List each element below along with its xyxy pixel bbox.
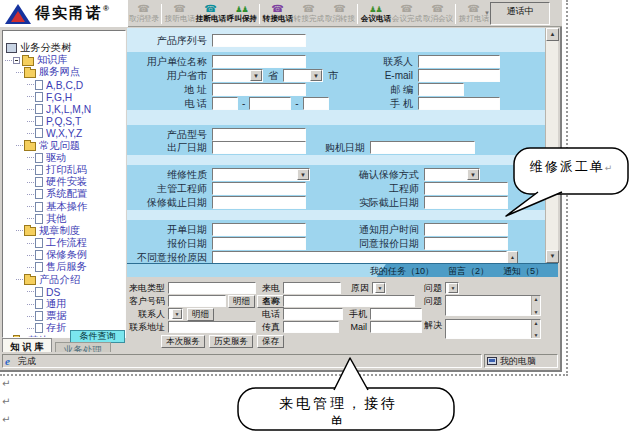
this-service-button[interactable]: 本次服务 <box>161 335 205 348</box>
chief-engineer-label: 主管工程师 <box>127 182 207 196</box>
toolbar-button-label: 会议完成 <box>391 14 421 24</box>
conference-done-icon <box>400 3 412 14</box>
tree-connector <box>16 279 23 280</box>
model-input[interactable] <box>212 128 306 141</box>
reason-combo[interactable] <box>372 282 386 294</box>
chevron-down-icon[interactable] <box>467 169 479 180</box>
repair-callout-text: 维修派工单↵ <box>514 158 628 176</box>
folder-icon <box>24 276 36 285</box>
call-phone-input[interactable] <box>283 308 343 320</box>
scroll-up-button[interactable] <box>546 28 559 41</box>
phone-area-input[interactable] <box>212 97 238 110</box>
incoming-callout-line1: 来电管理，接待 <box>246 395 431 413</box>
task-tab[interactable]: 通知（5） <box>503 265 544 278</box>
tree-connector <box>16 72 23 73</box>
toolbar-button-label: 呼叫保持 <box>226 14 256 24</box>
chevron-down-icon[interactable] <box>448 283 458 293</box>
tree-item[interactable]: 基本操作 <box>3 200 125 212</box>
toolbar-button-label: 转接电话 <box>262 14 292 24</box>
name-label: 名称 <box>260 295 280 308</box>
call-address-label: 联系地址 <box>129 321 165 334</box>
call-mobile-label: 手机 <box>347 308 367 321</box>
phone-label: 电 话 <box>127 97 207 111</box>
toolbar: 得实甬诺® 取消登录接听电话挂断电话呼叫保持转接电话转接完成取消转接会议电话会议… <box>0 0 562 27</box>
contact-input[interactable] <box>418 55 500 68</box>
open-date-label: 开单日期 <box>127 223 207 237</box>
paragraph-mark: ↵ <box>605 163 613 173</box>
tree-connector <box>27 133 34 134</box>
toolbar-button-label: 取消会议 <box>422 14 452 24</box>
folder-icon <box>24 142 36 151</box>
page-icon <box>35 323 43 333</box>
open-date-input[interactable] <box>212 223 306 236</box>
serial-label: 产品序列号 <box>127 34 207 48</box>
call-status-box: 通话中 <box>490 2 550 25</box>
tree-connector <box>27 267 34 268</box>
tree-item-label: P,Q,S,T <box>46 115 81 127</box>
incoming-call-panel: 来电类型 客户号码 明细 查询 联系人 明细 联系地址 来电 原因 <box>127 277 558 352</box>
tree-item-label: A,B,C,D <box>46 79 83 91</box>
province-city-label: 用户省市 <box>127 69 207 83</box>
page-icon <box>35 202 43 212</box>
toolbar-separator <box>455 4 456 24</box>
detail-button[interactable]: 明细 <box>228 295 255 308</box>
dial-call-icon <box>467 3 479 14</box>
tree-connector <box>27 316 34 317</box>
agent-logout-icon <box>137 3 149 14</box>
notify-time-input[interactable] <box>424 223 508 236</box>
fax-input[interactable] <box>283 321 339 333</box>
tree-item[interactable]: 其他 <box>3 213 125 225</box>
toolbar-button: 取消登录 <box>128 1 159 27</box>
status-bar: 完成 我的电脑 <box>2 352 558 368</box>
toolbar-button: 会议完成 <box>391 1 422 27</box>
toolbar-button[interactable]: 会议电话 <box>360 1 391 27</box>
tree-item-label: F,G,H <box>46 91 72 103</box>
dash-separator: - <box>242 98 245 109</box>
fax-label: 传真 <box>260 321 280 334</box>
folder-icon <box>24 69 36 78</box>
incoming-text-2: 单 <box>330 414 347 425</box>
page-icon <box>35 311 43 321</box>
province-combo[interactable] <box>212 69 263 82</box>
incoming-text-1: 来电管理，接待 <box>279 395 398 411</box>
tree-connector <box>27 84 34 85</box>
agree-quote-date-label: 同意报价日期 <box>307 237 419 251</box>
quote-date-input[interactable] <box>212 237 306 250</box>
toolbar-separator <box>161 4 162 24</box>
tree-connector <box>16 145 23 146</box>
tree-connector <box>27 194 34 195</box>
tree-connector <box>27 255 34 256</box>
phone-ext-input[interactable] <box>303 97 329 110</box>
browser-icon <box>5 356 15 366</box>
page-icon <box>35 299 43 309</box>
issue-label: 问题 <box>420 295 442 308</box>
page-icon <box>35 250 43 260</box>
tree-connector <box>27 243 34 244</box>
call-address-input[interactable] <box>168 321 256 333</box>
strip-decoration <box>127 264 386 277</box>
page-icon <box>35 238 43 248</box>
save-button[interactable]: 保存 <box>257 335 284 348</box>
page-icon <box>35 189 43 199</box>
paragraph-mark: ↵ <box>2 378 10 389</box>
tree-item[interactable]: 服务网点 <box>3 66 125 78</box>
page-icon <box>35 116 43 126</box>
caller-label: 来电 <box>260 282 280 295</box>
tree-item[interactable]: DS <box>3 286 125 298</box>
dash-separator: - <box>295 98 298 109</box>
tree-connector <box>27 328 34 329</box>
toolbar-button-label: 取消转接 <box>324 14 354 24</box>
call-contact-label: 联系人 <box>129 308 165 321</box>
toolbar-button-label: 会议电话 <box>360 14 390 24</box>
repair-callout-label: 维修派工单 <box>530 159 605 174</box>
selection-border-bottom <box>0 374 568 376</box>
agree-quote-date-input[interactable] <box>424 237 508 250</box>
paragraph-mark: ↵ <box>2 414 10 425</box>
toolbar-button: 接听电话 <box>164 1 195 27</box>
toolbar-button[interactable]: 呼叫保持 <box>226 1 257 27</box>
cancel-conference-icon <box>431 3 443 14</box>
tree-connector <box>27 182 34 183</box>
toolbar-separator <box>259 4 260 24</box>
collapse-icon[interactable] <box>13 57 20 64</box>
tree-item[interactable]: J,K,L,M,N <box>3 103 125 115</box>
model-label: 产品型号 <box>127 128 207 142</box>
tree-connector <box>27 169 34 170</box>
scroll-up-icon[interactable] <box>507 251 518 263</box>
answer-call-icon <box>173 3 185 14</box>
triangle-red <box>11 11 25 22</box>
contact-combo[interactable] <box>168 308 183 320</box>
warranty-deadline-input[interactable] <box>212 196 306 209</box>
app-logo: 得实甬诺® <box>0 0 128 27</box>
incoming-callout-line2: 单 <box>246 414 431 425</box>
toolbar-button: 转接完成 <box>293 1 324 27</box>
city-combo[interactable] <box>283 69 323 82</box>
chevron-down-icon[interactable] <box>250 70 262 81</box>
tree-item-label: DS <box>46 286 60 298</box>
page-icon <box>35 262 43 272</box>
tree-connector <box>27 121 34 122</box>
page-icon <box>35 214 43 224</box>
chevron-down-icon[interactable] <box>375 283 385 293</box>
paragraph-mark: ↵ <box>2 396 10 407</box>
quote-date-label: 报价日期 <box>127 237 207 251</box>
reason-label: 原因 <box>347 282 369 295</box>
task-tabs: 我的任务（10）留言（2）通知（5） <box>370 264 544 277</box>
tree-item[interactable]: 驱动 <box>3 152 125 164</box>
caller-input[interactable] <box>283 282 341 294</box>
folder-icon <box>24 227 36 236</box>
hangup-call-icon <box>204 3 216 14</box>
toolbar-button[interactable]: 挂断电话 <box>195 1 226 27</box>
chevron-down-icon[interactable] <box>172 309 182 319</box>
tree-connector <box>27 109 34 110</box>
tree-connector <box>16 230 23 231</box>
tree-connector <box>27 218 34 219</box>
registered-mark: ® <box>103 4 111 13</box>
tree-item-label: W,X,Y,Z <box>46 128 82 140</box>
contact-detail-button[interactable]: 明细 <box>187 308 214 321</box>
tree-items: 知识库服务网点A,B,C,DF,G,HJ,K,L,M,NP,Q,S,TW,X,Y… <box>3 54 125 338</box>
chief-engineer-input[interactable] <box>212 182 306 195</box>
form-scrollbar[interactable] <box>545 28 558 263</box>
status-left: 完成 <box>2 354 482 368</box>
page-icon <box>35 80 43 90</box>
scroll-down-button[interactable] <box>546 250 559 263</box>
tree-connector <box>5 60 12 61</box>
engineer-input[interactable] <box>424 182 508 195</box>
customer-no-input[interactable] <box>168 295 226 307</box>
repair-nature-combo[interactable] <box>212 168 310 181</box>
tree-item-label: J,K,L,M,N <box>46 103 91 115</box>
page-icon <box>35 287 43 297</box>
actual-deadline-input[interactable] <box>424 196 508 209</box>
toolbar-button[interactable]: 转接电话 <box>262 1 293 27</box>
brand-text: 得实甬诺 <box>35 4 103 21</box>
page-icon <box>35 177 43 187</box>
purchase-date-label: 购机日期 <box>287 141 365 155</box>
zone-text: 我的电脑 <box>500 355 536 368</box>
tree-item[interactable]: P,Q,S,T <box>3 115 125 127</box>
status-right: 我的电脑 <box>484 354 558 368</box>
task-tab[interactable]: 我的任务（10） <box>370 265 434 278</box>
purchase-date-input[interactable] <box>370 141 475 154</box>
notify-time-label: 通知用户时间 <box>307 223 419 237</box>
disagree-reason-label: 不同意报价原因 <box>127 251 207 264</box>
contact-label: 联系人 <box>327 55 413 69</box>
solution-label: 解决 <box>420 319 442 332</box>
toolbar-button: 拨打电话 <box>458 1 489 27</box>
tree-connector <box>27 291 34 292</box>
unit-input[interactable] <box>212 55 306 68</box>
tree-item[interactable]: 售后服务 <box>3 261 125 273</box>
tree-connector <box>27 157 34 158</box>
repair-order-form: 产品序列号 用户单位名称 用户省市 省 市 地 址 电 话 - <box>127 28 545 263</box>
textarea-scrollbar[interactable] <box>531 296 540 315</box>
address-label: 地 址 <box>127 83 207 97</box>
status-text: 完成 <box>18 355 36 368</box>
selection-border-right <box>566 0 568 376</box>
zip-label: 邮 编 <box>327 83 413 97</box>
call-type-input[interactable] <box>168 282 256 294</box>
tree-item[interactable]: 常见问题 <box>3 140 125 152</box>
name-input[interactable] <box>283 295 415 307</box>
conference-call-icon <box>369 3 381 14</box>
call-mobile-input[interactable] <box>370 308 422 320</box>
mobile-label: 手 机 <box>327 97 413 111</box>
app-window: 业务分类树 知识库服务网点A,B,C,DF,G,HJ,K,L,M,NP,Q,S,… <box>0 27 562 372</box>
phone-number-input[interactable] <box>249 97 291 110</box>
disagree-reason-input[interactable] <box>212 251 507 263</box>
email-label: E-mail <box>327 70 413 81</box>
tree-connector <box>27 206 34 207</box>
call-phone-label: 电话 <box>260 308 280 321</box>
tree-item-label: 服务网点 <box>39 66 80 80</box>
mail-input[interactable] <box>370 321 422 333</box>
tree-item-label: 存折 <box>46 322 67 336</box>
cancel-transfer-icon <box>333 3 345 14</box>
category-tree-panel: 业务分类树 知识库服务网点A,B,C,DF,G,HJ,K,L,M,NP,Q,S,… <box>2 30 126 338</box>
toolbar-separator <box>357 4 358 24</box>
task-tab-strip: 我的任务（10）留言（2）通知（5） <box>127 263 558 277</box>
serial-input[interactable] <box>212 34 306 47</box>
chevron-down-icon[interactable] <box>310 70 322 81</box>
toolbar-buttons: 取消登录接听电话挂断电话呼叫保持转接电话转接完成取消转接会议电话会议完成取消会议… <box>128 0 489 27</box>
tree-item[interactable]: 产品介绍 <box>3 274 125 286</box>
transfer-call-icon <box>271 3 283 14</box>
page-icon <box>35 153 43 163</box>
factory-date-label: 出厂日期 <box>127 141 207 155</box>
province-suffix: 省 <box>268 69 278 83</box>
issue-type-label: 问题 <box>420 282 442 295</box>
tree-connector <box>27 304 34 305</box>
textarea-scrollbar[interactable] <box>531 320 540 338</box>
toolbar-button-label: 取消登录 <box>128 14 158 24</box>
tree-item[interactable]: 系统配置 <box>3 188 125 200</box>
solution-textarea[interactable] <box>445 319 541 339</box>
hold-call-icon <box>235 3 247 14</box>
zip-input[interactable] <box>418 83 464 96</box>
issue-type-combo[interactable] <box>445 282 459 294</box>
repair-nature-label: 维修性质 <box>127 168 207 182</box>
tree-item[interactable]: A,B,C,D <box>3 79 125 91</box>
tree-connector <box>27 96 34 97</box>
task-tab[interactable]: 留言（2） <box>448 265 489 278</box>
warranty-mode-label: 确认保修方式 <box>307 168 419 182</box>
brand-name: 得实甬诺® <box>35 4 111 23</box>
folder-icon <box>22 57 34 66</box>
screenshot-root: 得实甬诺® 取消登录接听电话挂断电话呼叫保持转接电话转接完成取消转接会议电话会议… <box>0 0 635 434</box>
tree-item[interactable]: W,X,Y,Z <box>3 127 125 139</box>
page-icon <box>35 92 43 102</box>
tree-root-icon <box>6 43 17 53</box>
address-input[interactable] <box>212 83 306 96</box>
warranty-deadline-label: 保修截止日期 <box>127 196 207 210</box>
toolbar-button-label: 转接完成 <box>293 14 323 24</box>
unit-label: 用户单位名称 <box>127 55 207 69</box>
transfer-done-icon <box>302 3 314 14</box>
page-icon <box>35 165 43 175</box>
tree-item[interactable]: F,G,H <box>3 91 125 103</box>
page-icon <box>35 128 43 138</box>
issue-textarea[interactable] <box>445 295 541 316</box>
customer-no-label: 客户号码 <box>129 295 165 308</box>
warranty-mode-combo[interactable] <box>424 168 480 181</box>
tree-item-label: 产品介绍 <box>39 273 80 287</box>
toolbar-button-label: 拨打电话 <box>458 14 488 24</box>
actual-deadline-label: 实际截止日期 <box>307 196 419 210</box>
toolbar-button-label: 挂断电话 <box>195 14 225 24</box>
history-service-button[interactable]: 历史服务 <box>209 335 253 348</box>
brand-triangle-icon <box>5 4 31 24</box>
page-icon <box>35 104 43 114</box>
mail-label: Mail <box>343 322 367 332</box>
call-type-label: 来电类型 <box>129 282 165 295</box>
engineer-label: 工程师 <box>307 182 419 196</box>
toolbar-button: 取消会议 <box>422 1 453 27</box>
email-input[interactable] <box>418 69 500 82</box>
toolbar-button: 取消转接 <box>324 1 355 27</box>
my-computer-icon <box>487 357 497 365</box>
toolbar-button-label: 接听电话 <box>164 14 194 24</box>
mobile-input[interactable] <box>418 97 500 110</box>
